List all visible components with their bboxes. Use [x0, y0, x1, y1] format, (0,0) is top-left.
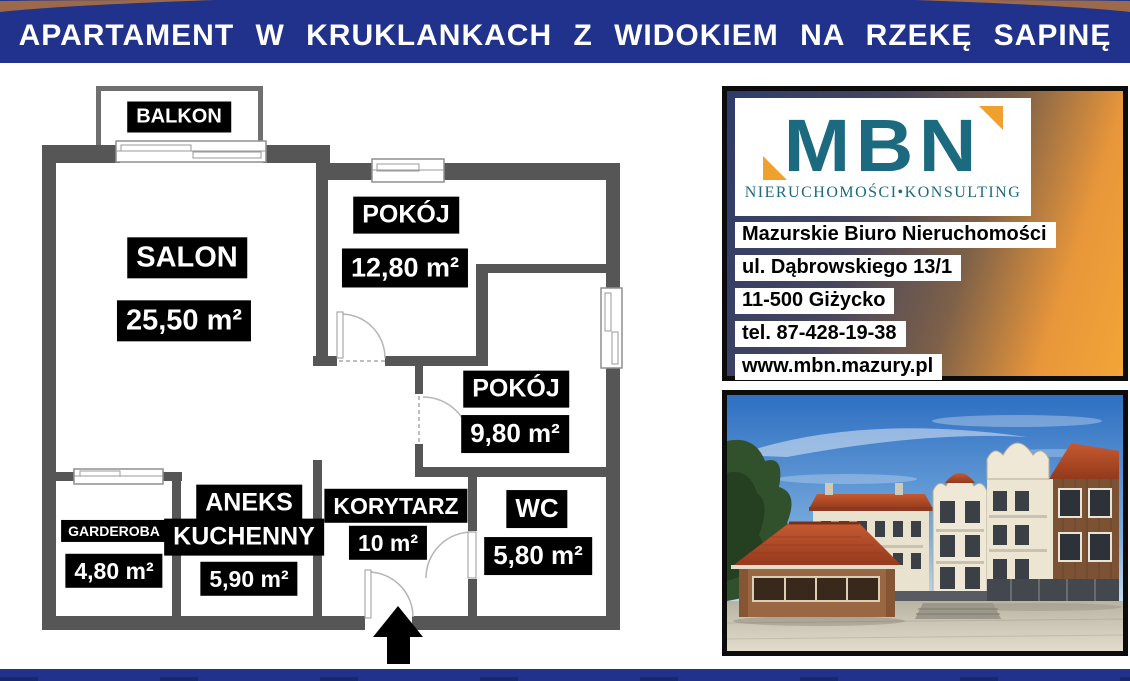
room-label-salon: SALON	[127, 237, 247, 278]
footer-bar	[0, 669, 1130, 681]
area-label-korytarz: 10 m²	[349, 526, 427, 560]
entrance-arrow-icon	[373, 606, 423, 664]
room-label-balkon: BALKON	[127, 102, 231, 133]
agency-phone: tel. 87-428-19-38	[735, 321, 906, 347]
room-label-pokoj-prawy: POKÓJ	[463, 371, 569, 408]
room-label-pokoj-gorny: POKÓJ	[353, 197, 459, 234]
area-label-garderoba: 4,80 m²	[65, 554, 162, 588]
agency-street: ul. Dąbrowskiego 13/1	[735, 255, 961, 281]
room-label-korytarz: KORYTARZ	[324, 489, 467, 523]
decorative-swoosh-right	[915, 0, 1130, 12]
area-label-aneks: 5,90 m²	[200, 562, 297, 596]
area-label-wc: 5,80 m²	[484, 537, 592, 575]
listing-flyer: APARTAMENT W KRUKLANKACH Z WIDOKIEM NA R…	[0, 0, 1130, 681]
area-label-pokoj-gorny: 12,80 m²	[342, 248, 468, 287]
agency-contact-block: Mazurskie Biuro Nieruchomości ul. Dąbrow…	[735, 222, 1056, 380]
building-photo-frame	[722, 390, 1128, 656]
building-photo-illustration	[727, 395, 1123, 651]
agency-logo: MBN NIERUCHOMOŚCI•KONSULTING	[735, 98, 1031, 216]
room-label-aneks-line1: ANEKS	[196, 485, 302, 522]
agency-website: www.mbn.mazury.pl	[735, 354, 942, 380]
footer-cropped-thumbnails	[0, 677, 1130, 681]
area-label-salon: 25,50 m²	[117, 300, 251, 341]
agency-city: 11-500 Giżycko	[735, 288, 894, 314]
logo-accent-triangle-top-right	[979, 106, 1003, 130]
door-thresholds	[339, 361, 419, 443]
floor-plan: BALKON SALON 25,50 m² POKÓJ 12,80 m² POK…	[0, 0, 726, 681]
room-label-garderoba: GARDEROBA	[61, 520, 167, 542]
agency-panel: MBN NIERUCHOMOŚCI•KONSULTING Mazurskie B…	[722, 86, 1128, 381]
area-label-pokoj-prawy: 9,80 m²	[461, 415, 569, 453]
agency-name: Mazurskie Biuro Nieruchomości	[735, 222, 1056, 248]
agency-logo-text: MBN	[784, 112, 982, 180]
room-label-wc: WC	[506, 490, 567, 528]
room-label-aneks-line2: KUCHENNY	[164, 519, 324, 556]
